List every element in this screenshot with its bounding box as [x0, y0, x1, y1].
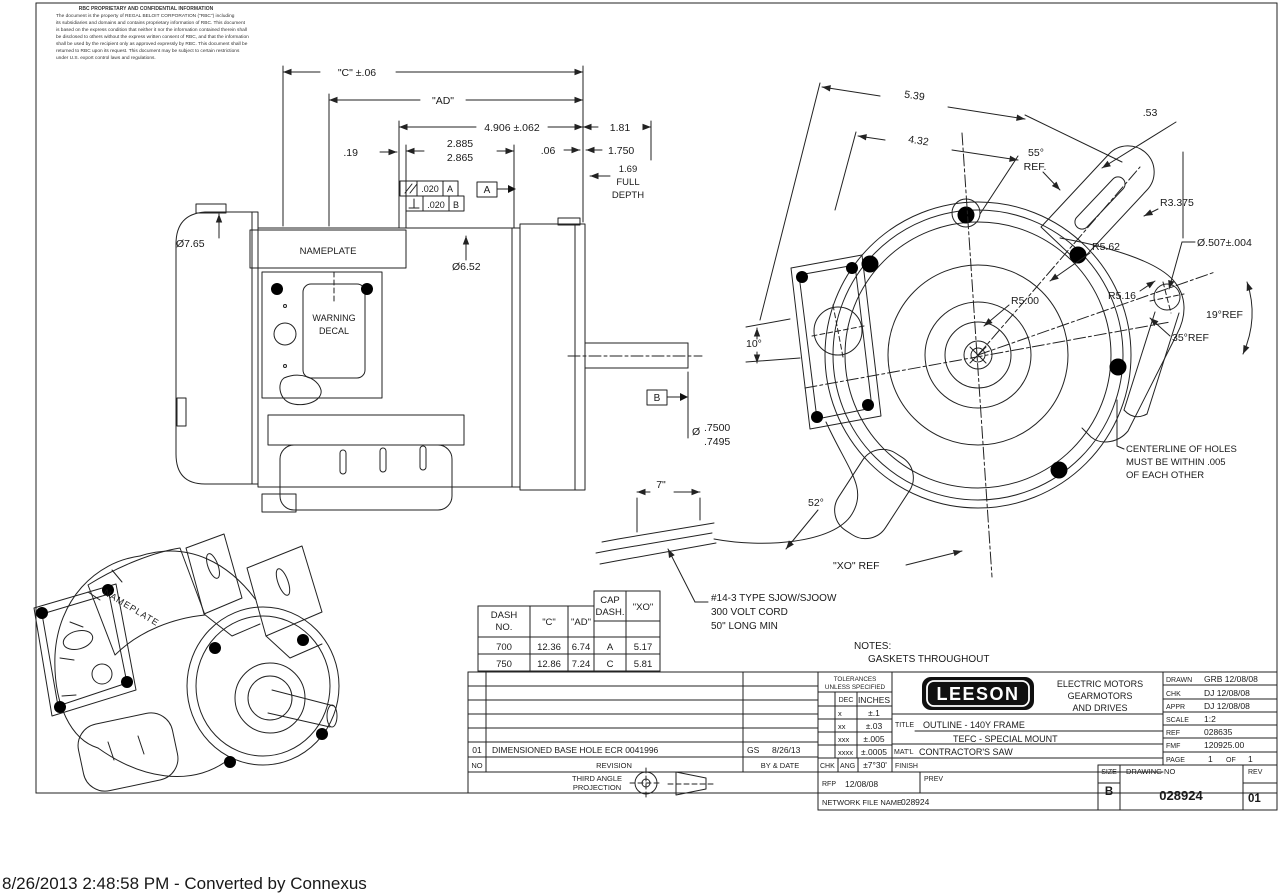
scale-label: SCALE: [1166, 717, 1189, 724]
table-cell: 7.24: [572, 659, 591, 670]
finish-label: FINISH: [895, 763, 918, 770]
xo-ref-label: "XO" REF: [833, 560, 880, 572]
ref-value: 028635: [1204, 727, 1233, 737]
cord-note: 50" LONG MIN: [711, 621, 778, 632]
dim-053-label: .53: [1143, 107, 1158, 119]
dim-432-label: 4.32: [907, 134, 929, 149]
confidential-line: be disclosed to others without the expre…: [56, 34, 249, 40]
dim-1750-label: 1.750: [608, 145, 634, 157]
angle-55-ref-label: REF.: [1024, 161, 1047, 173]
confidential-line: under U.S. export control laws and regul…: [56, 55, 156, 61]
notes-item: GASKETS THROUGHOUT: [868, 654, 990, 665]
dim-ad-label: "AD": [432, 95, 454, 107]
dia-fan-label: Ø7.65: [176, 238, 205, 250]
chk-row-value: DJ 12/08/08: [1204, 688, 1250, 698]
warning-decal-label: DECAL: [319, 326, 349, 336]
drawn-label: DRAWN: [1166, 677, 1192, 684]
end-view: [596, 133, 1215, 577]
power-cord-stub: [280, 375, 321, 404]
iso-shaft-end: [327, 705, 337, 727]
chk-row-label: CHK: [1166, 691, 1181, 698]
shaft-dia-max: .7500: [704, 422, 730, 434]
radius-516-label: R5.16: [1108, 290, 1136, 302]
table-cell: 12.86: [537, 659, 561, 670]
confidential-line: shall be used by the recipient only as a…: [56, 41, 248, 47]
tol-row-value: ±.1: [868, 708, 880, 718]
fcf-perp-datum: B: [453, 200, 459, 210]
tol-row-label: xx: [838, 722, 846, 731]
angle-19-label: 19°REF: [1206, 309, 1243, 321]
appr-label: APPR: [1166, 704, 1185, 711]
chk-label: CHK: [820, 763, 835, 770]
tol-row-value: ±.0005: [861, 747, 887, 757]
notes-label: NOTES:: [854, 641, 891, 652]
title-label: TITLE: [895, 722, 914, 729]
page-total: 1: [1248, 754, 1253, 764]
confidential-notice: RBC PROPRIETARY AND CONFIDENTIAL INFORMA…: [56, 6, 249, 61]
appr-value: DJ 12/08/08: [1204, 701, 1250, 711]
angle-35-label: 35°REF: [1172, 332, 1209, 344]
col-dash-header: NO.: [496, 622, 513, 633]
power-cord: [714, 422, 858, 543]
matl-label: MAT'L: [894, 749, 914, 756]
iso-nameplate-label: NAMEPLATE: [102, 587, 161, 628]
matl-value: CONTRACTOR'S SAW: [919, 747, 1013, 757]
motor-body: [258, 228, 520, 487]
iso-body-bottom: [98, 748, 228, 777]
fmf-value: 120925.00: [1204, 740, 1244, 750]
fan-cover: [176, 212, 258, 484]
drawing-no-label: DRAWING NO: [1126, 767, 1175, 776]
col-xo-header: "XO": [633, 602, 653, 613]
dim-2885-label: 2.885: [447, 138, 473, 150]
nameplate-label: NAMEPLATE: [300, 246, 357, 257]
datum-b-flag: B: [654, 393, 661, 404]
conversion-footer: 8/26/2013 2:48:58 PM - Converted by Conn…: [2, 874, 367, 893]
drawn-value: GRB 12/08/08: [1204, 674, 1258, 684]
datum-a-flag: A: [484, 185, 491, 196]
table-cell: 12.36: [537, 642, 561, 653]
drawing-title-line1: OUTLINE - 140Y FRAME: [923, 720, 1025, 730]
brand-tagline: AND DRIVES: [1072, 703, 1127, 713]
brand-tagline: GEARMOTORS: [1068, 691, 1133, 701]
col-cap-header: DASH.: [595, 607, 624, 618]
centerline-note: CENTERLINE OF HOLES: [1126, 444, 1237, 455]
side-view: [176, 204, 702, 512]
col-dash-header: DASH: [491, 610, 518, 621]
end-view-dimensions: [637, 83, 1252, 602]
drawing-title-line2: TEFC - SPECIAL MOUNT: [953, 734, 1058, 744]
centerline-note: OF EACH OTHER: [1126, 470, 1204, 481]
radius-3375-label: R3.375: [1160, 197, 1194, 209]
cord-note: 300 VOLT CORD: [711, 607, 788, 618]
table-cell: 6.74: [572, 642, 591, 653]
tol-row-label: x: [838, 709, 842, 718]
dim-169-label: 1.69: [619, 164, 638, 175]
ang-value: ±7°30': [863, 760, 887, 770]
angle-52-label: 52°: [808, 497, 824, 509]
dia-body-label: Ø6.52: [452, 261, 481, 273]
table-cell: 750: [496, 659, 512, 670]
size-label: SIZE: [1101, 769, 1117, 776]
tol-row-value: ±.005: [863, 734, 884, 744]
dim-2865-label: 2.865: [447, 152, 473, 164]
drawing-no-value: 028924: [1159, 788, 1203, 803]
network-file-label: NETWORK FILE NAME: [822, 798, 902, 807]
col-ad-header: "AD": [571, 617, 591, 628]
dim-006-label: .06: [541, 145, 556, 157]
drawing-canvas: RBC PROPRIETARY AND CONFIDENTIAL INFORMA…: [0, 0, 1280, 896]
radius-500-label: R5.00: [1011, 295, 1039, 307]
dim-7in-label: 7": [656, 479, 666, 491]
confidential-line: its subsidiaries and domains and contain…: [56, 20, 246, 26]
revision-desc: DIMENSIONED BASE HOLE ECR 0041996: [492, 745, 659, 755]
tolerances-header: TOLERANCES: [834, 676, 877, 683]
fmf-label: FMF: [1166, 743, 1180, 750]
cord-note: #14-3 TYPE SJOW/SJOOW: [711, 593, 837, 604]
full-depth-label: DEPTH: [612, 190, 644, 201]
fcf-parallel-datum: A: [447, 184, 453, 194]
page-of: OF: [1226, 757, 1236, 764]
col-cap-header: CAP: [600, 595, 620, 606]
size-value: B: [1105, 786, 1113, 798]
centerline-note: MUST BE WITHIN .005: [1126, 457, 1226, 468]
third-angle-label: PROJECTION: [573, 783, 621, 792]
table-cell: A: [607, 642, 614, 653]
rfp-label: RFP: [822, 781, 836, 788]
col-c-header: "C": [542, 617, 556, 628]
table-cell: 700: [496, 642, 512, 653]
tol-row-label: xxx: [838, 735, 850, 744]
tol-row-value: ±.03: [866, 721, 883, 731]
confidential-line: The document is the property of REGAL BE…: [56, 13, 235, 19]
col-revision-header: REVISION: [596, 761, 632, 770]
table-cell: 5.17: [634, 642, 653, 653]
tolerances-header: UNLESS SPECIFIED: [825, 684, 886, 691]
tol-dec-label: DEC: [839, 697, 854, 704]
leeson-logo: LEESON: [936, 684, 1019, 704]
col-bydate-header: BY & DATE: [761, 761, 800, 770]
iso-nameplate-band: [88, 548, 205, 655]
network-file-value: 028924: [901, 797, 930, 807]
tol-inches-label: INCHES: [858, 695, 890, 705]
iso-face: [187, 607, 339, 765]
tol-row-label: xxxx: [838, 748, 853, 757]
rfp-value: 12/08/08: [845, 779, 878, 789]
revision-by: GS: [747, 745, 760, 755]
confidential-line: is based on the express condition that n…: [56, 27, 247, 33]
iso-bracket-1: [186, 534, 242, 614]
fcf-perp-tol: .020: [427, 200, 445, 210]
iso-bracket-2: [247, 546, 322, 636]
page-label: PAGE: [1166, 757, 1185, 764]
dim-c-label: "C" ±.06: [338, 67, 376, 79]
rev-label: REV: [1248, 769, 1263, 776]
angle-55-label: 55°: [1028, 147, 1044, 159]
third-angle-label: THIRD ANGLE: [572, 774, 622, 783]
angle-10-label: 10°: [746, 338, 762, 350]
table-cell: C: [607, 659, 614, 670]
shaft-dia-symbol: Ø: [692, 426, 700, 438]
confidential-title: RBC PROPRIETARY AND CONFIDENTIAL INFORMA…: [79, 6, 214, 12]
scale-value: 1:2: [1204, 714, 1216, 724]
page-num: 1: [1208, 754, 1213, 764]
radius-562-label: R5.62: [1092, 241, 1120, 253]
iso-view: [34, 534, 339, 795]
ang-label: ANG: [840, 763, 855, 770]
drawing-sheet: RBC PROPRIETARY AND CONFIDENTIAL INFORMA…: [0, 0, 1280, 896]
fcf-parallel-tol: .020: [421, 184, 439, 194]
revision-date: 8/26/13: [772, 745, 801, 755]
col-no-header: NO: [471, 761, 482, 770]
brand-tagline: ELECTRIC MOTORS: [1057, 679, 1143, 689]
dim-181-label: 1.81: [610, 122, 631, 134]
dim-539-label: 5.39: [903, 89, 925, 104]
mounting-plate: [268, 415, 464, 445]
iso-rear-cover: [55, 556, 140, 748]
full-depth-label: FULL: [616, 177, 639, 188]
rev-value: 01: [1248, 793, 1261, 805]
iso-bottom-cover: [74, 709, 182, 795]
hole-dia-label: Ø.507±.004: [1197, 237, 1252, 249]
dim-4906-label: 4.906 ±.062: [484, 122, 540, 134]
dim-019-label: .19: [343, 147, 358, 159]
warning-decal-label: WARNING: [312, 313, 355, 323]
ref-label: REF: [1166, 730, 1180, 737]
table-cell: 5.81: [634, 659, 653, 670]
prev-label: PREV: [924, 776, 943, 783]
revision-no: 01: [472, 745, 482, 755]
confidential-line: returned to RBC upon its request. This d…: [56, 48, 240, 54]
shaft-dia-min: .7495: [704, 436, 730, 448]
